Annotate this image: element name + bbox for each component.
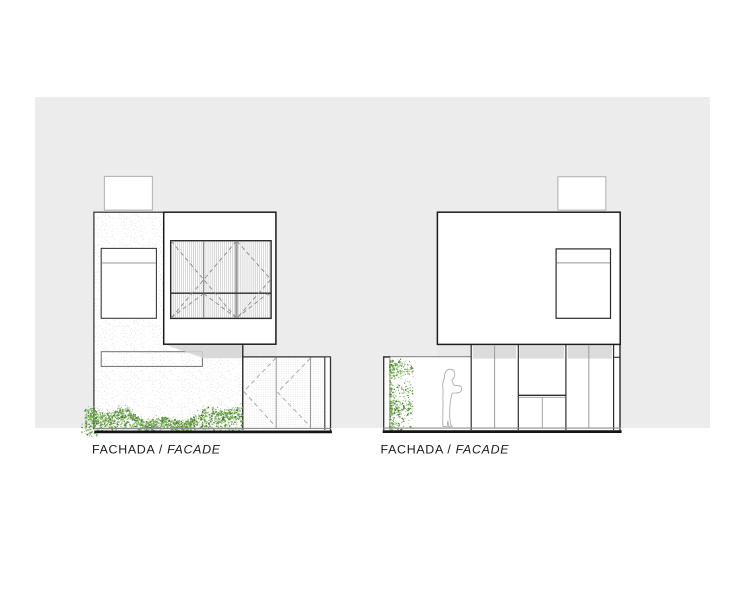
svg-text:FACHADA / FACADE: FACHADA / FACADE: [381, 442, 510, 456]
svg-text:FACHADA / FACADE: FACHADA / FACADE: [92, 442, 221, 456]
